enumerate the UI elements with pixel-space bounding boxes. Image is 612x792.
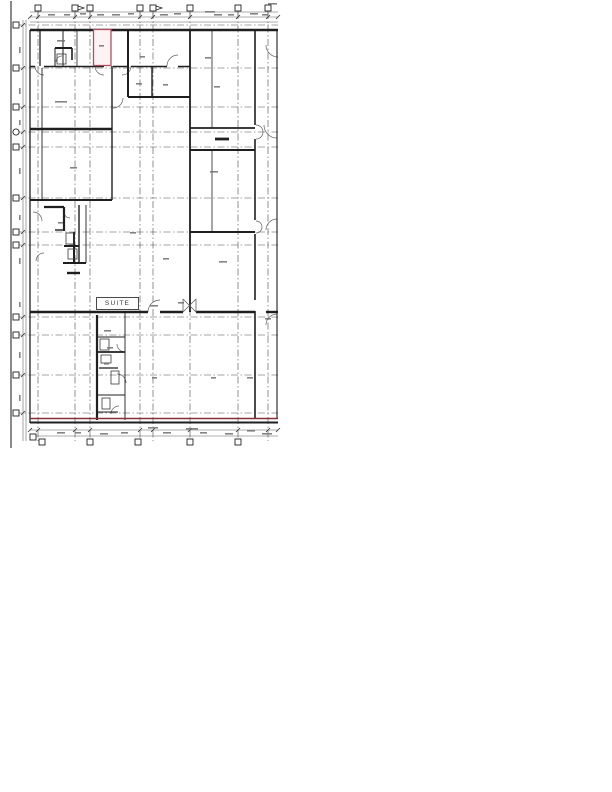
grid-bubble-markers-layer — [13, 5, 271, 445]
walls-layer — [30, 30, 278, 423]
scanned-floor-plan-page: SUITE — [0, 0, 612, 792]
grid-lines-layer — [15, 12, 278, 441]
dimension-lines-layer — [11, 1, 280, 448]
suite-label: SUITE — [96, 297, 139, 310]
door-arcs-layer — [33, 45, 278, 414]
red-highlight-layer — [30, 30, 278, 419]
floor-plan-canvas — [0, 0, 612, 792]
